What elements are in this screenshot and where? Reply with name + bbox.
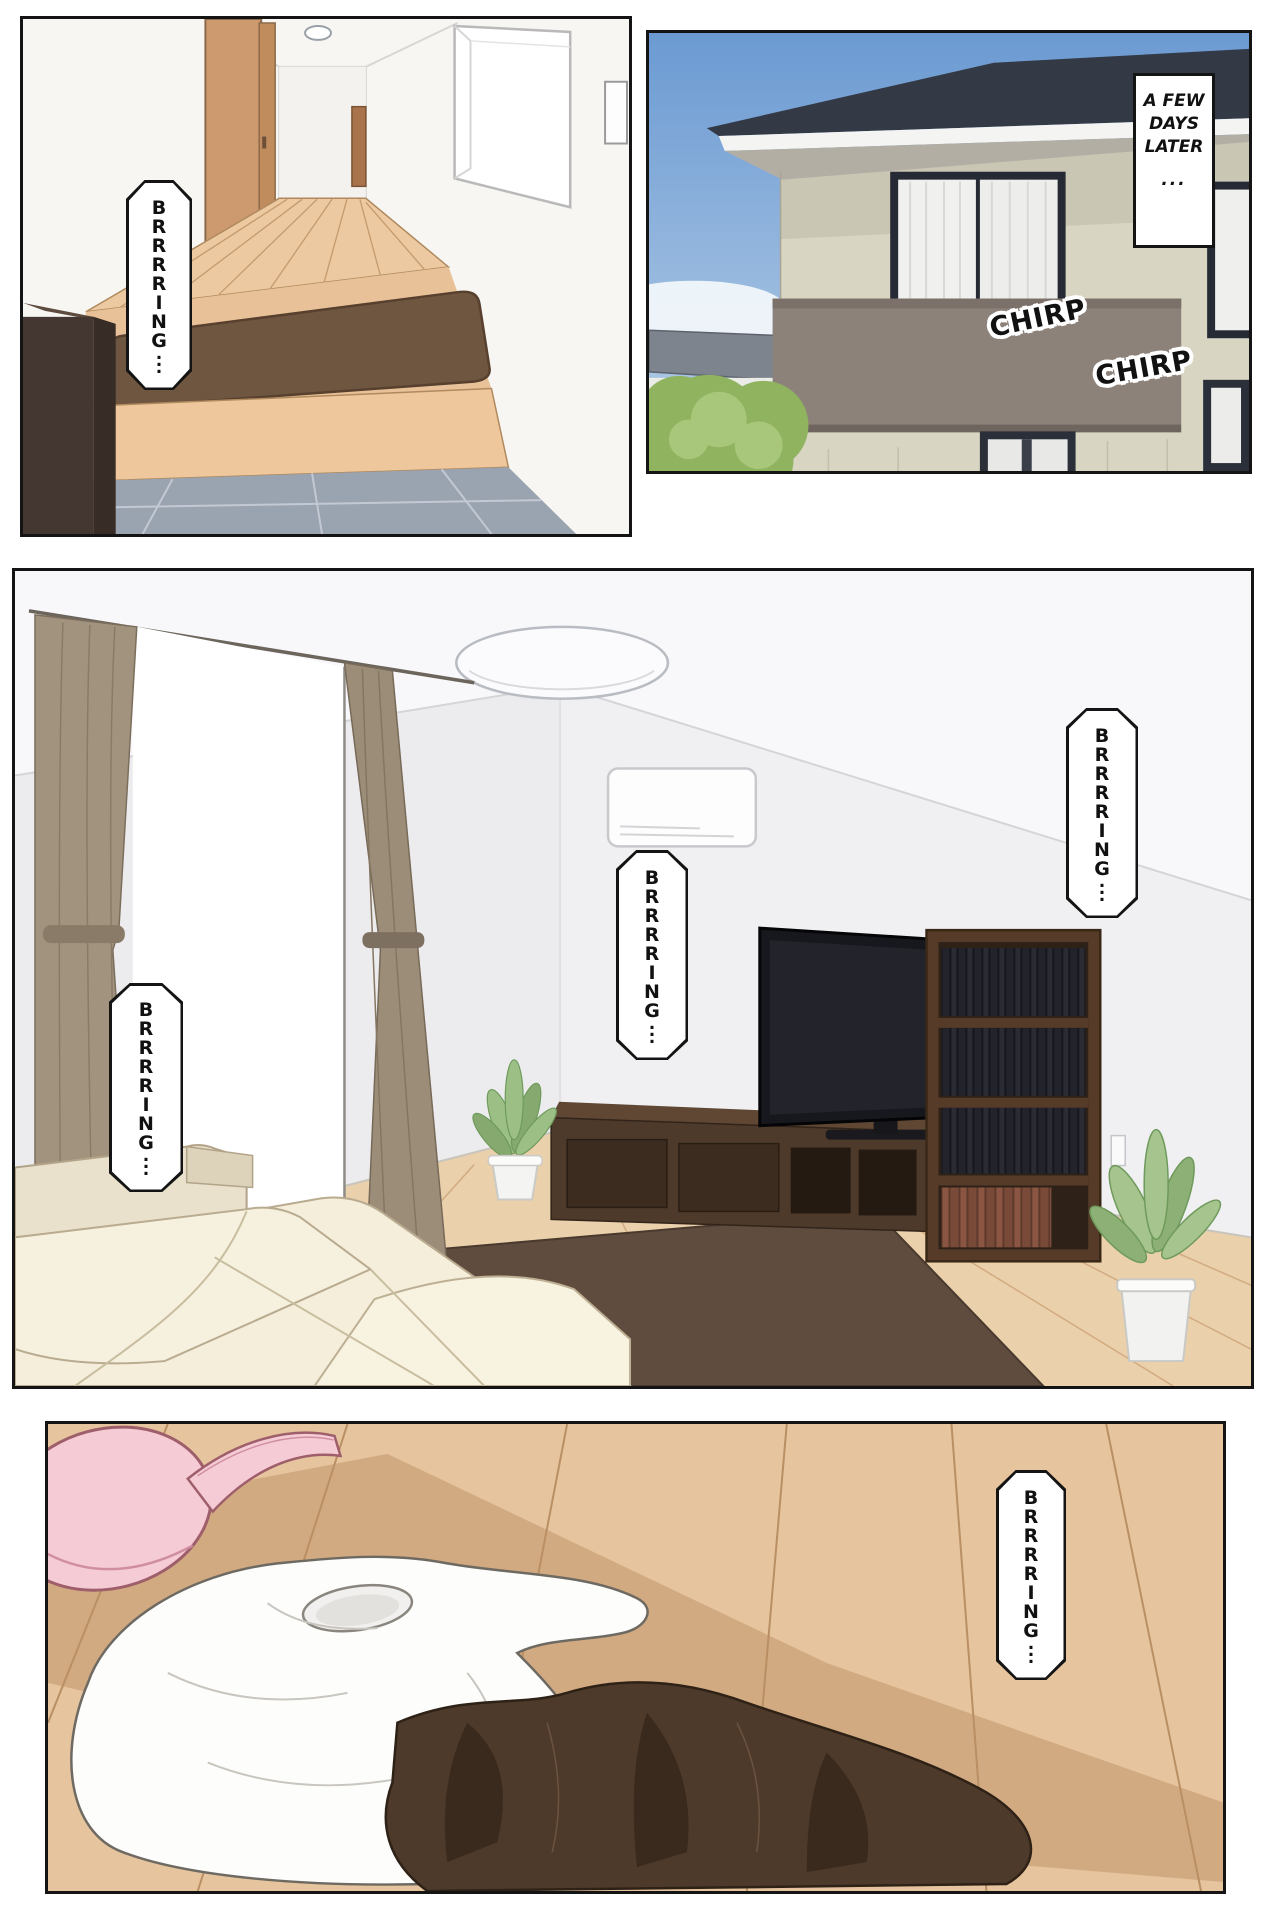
right-window-pane xyxy=(1215,190,1249,331)
caption-line: A FEW xyxy=(1143,90,1204,113)
panel-hallway: BRRRRING... xyxy=(20,16,632,537)
bubble-text: BRRRRING... xyxy=(151,199,167,372)
back-door xyxy=(352,107,366,187)
bubble-outline: BRRRRING... xyxy=(1066,708,1138,918)
window-opening xyxy=(455,26,571,207)
bubble-outline: BRRRRING... xyxy=(996,1470,1066,1680)
bubble-fill: BRRRRING... xyxy=(129,183,190,388)
bubble-outline: BRRRRING... xyxy=(109,983,183,1192)
bubble-fill: BRRRRING... xyxy=(112,986,181,1190)
ground-window xyxy=(980,431,1076,471)
bubble-outline: BRRRRING... xyxy=(126,180,192,390)
sfx-bubble-ring-1: BRRRRING... xyxy=(126,180,192,390)
comic-page: BRRRRING... xyxy=(0,0,1280,1920)
ground-window-right xyxy=(1203,380,1249,471)
bubble-fill: BRRRRING... xyxy=(1069,711,1136,916)
curtain-right-tieback xyxy=(362,932,424,948)
caption-line: DAYS xyxy=(1149,113,1199,136)
shoe-cabinet xyxy=(23,303,116,534)
sfx-bubble-ring-3: BRRRRING... xyxy=(616,850,688,1060)
sfx-bubble-ring-5: BRRRRING... xyxy=(996,1470,1066,1680)
caption-ellipsis: ... xyxy=(1161,169,1186,192)
wall-frame xyxy=(605,82,627,144)
bubble-fill: BRRRRING... xyxy=(619,853,686,1058)
bookshelf xyxy=(927,930,1101,1261)
hallway-illustration xyxy=(23,19,629,534)
sfx-bubble-ring-4: BRRRRING... xyxy=(1066,708,1138,918)
wall-outlet xyxy=(1111,1136,1125,1166)
bubble-fill: BRRRRING... xyxy=(999,1473,1064,1678)
bubble-outline: BRRRRING... xyxy=(616,850,688,1060)
caption-line: LATER xyxy=(1145,136,1204,159)
bubble-text: BRRRRING... xyxy=(644,869,660,1042)
panel-living-room: BRRRRING... BRRRRING... BRRRRING... xyxy=(12,568,1254,1389)
hall-downlight xyxy=(305,26,331,40)
panel-house-exterior: A FEW DAYS LATER ... CHIRP CHIRP xyxy=(646,30,1252,474)
panel-clothes-floor: BRRRRING... xyxy=(45,1421,1226,1894)
tree xyxy=(649,375,808,471)
ceiling-light xyxy=(456,627,668,699)
curtain-left-tieback xyxy=(43,925,125,943)
sfx-bubble-ring-2: BRRRRING... xyxy=(109,983,183,1192)
caption-box: A FEW DAYS LATER ... xyxy=(1133,73,1215,248)
bubble-text: BRRRRING... xyxy=(138,1001,154,1174)
air-conditioner xyxy=(608,769,756,847)
bubble-text: BRRRRING... xyxy=(1094,727,1110,900)
bubble-text: BRRRRING... xyxy=(1023,1489,1039,1662)
